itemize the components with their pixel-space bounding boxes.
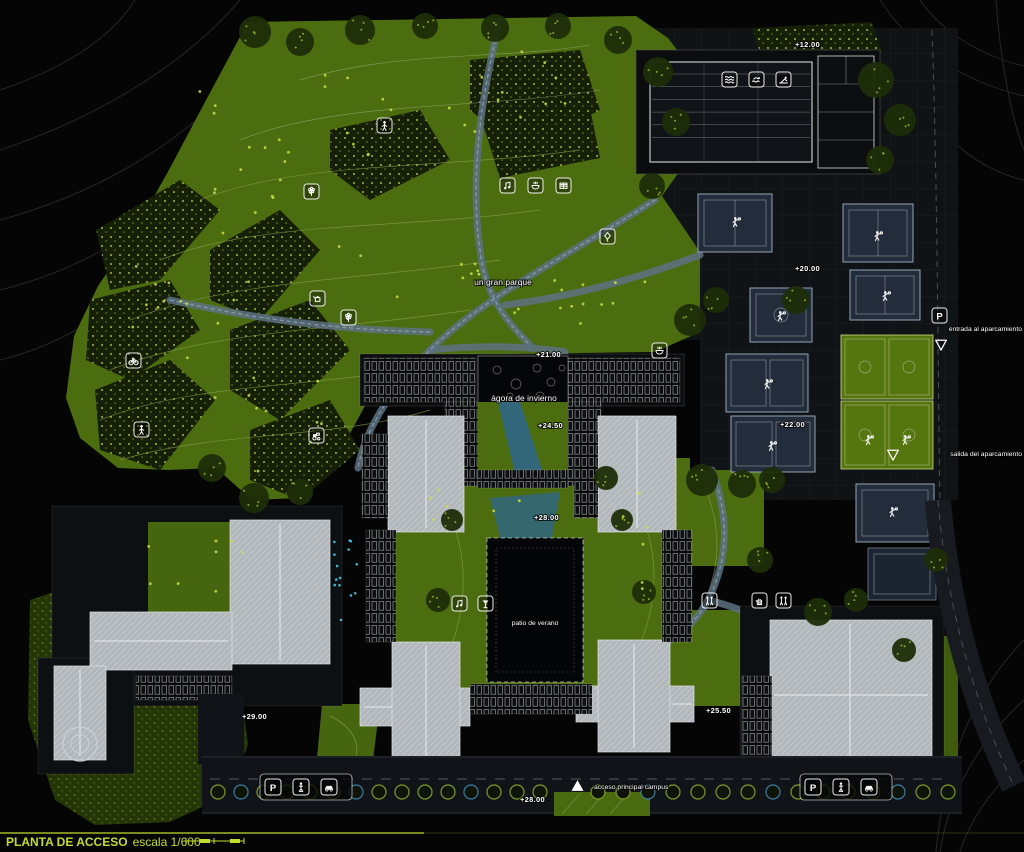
park-label: un gran parque <box>474 277 532 287</box>
elevation-mark: +28.00 <box>534 513 559 522</box>
motorbike-icon <box>833 779 849 795</box>
southeast-building <box>740 606 944 780</box>
plan-title: PLANTA DE ACCESOescala 1/600 <box>6 835 201 849</box>
south-gallery <box>470 684 592 714</box>
elevation-mark: +25.50 <box>706 706 731 715</box>
walker-icon <box>134 422 149 437</box>
east-gallery <box>662 530 692 642</box>
book-icon <box>556 178 571 193</box>
hand-icon <box>752 593 767 608</box>
elevation-mark: +29.00 <box>242 712 267 721</box>
parking-icon: P <box>265 779 281 795</box>
plant-icon <box>341 310 356 325</box>
swimmer-icon <box>749 72 764 87</box>
svg-text:P: P <box>270 783 277 794</box>
parking-exit-label: salida del aparcamiento <box>950 451 1022 458</box>
parking-icon: P <box>805 779 821 795</box>
hiker-icon <box>377 118 392 133</box>
elevation-mark: +22.00 <box>780 420 805 429</box>
motorbike-icon <box>293 779 309 795</box>
svg-text:P: P <box>936 312 943 323</box>
svg-text:P: P <box>810 783 817 794</box>
music-icon <box>452 596 467 611</box>
bicycle-icon <box>126 353 141 368</box>
elevation-mark: +21.00 <box>536 350 561 359</box>
north-east-wing <box>568 358 680 402</box>
elevation-mark: +24.50 <box>538 421 563 430</box>
people-icon <box>776 593 791 608</box>
people-icon <box>702 593 717 608</box>
site-plan: P P P un gran parque ágora de invierno p… <box>0 0 1024 852</box>
winter-agora-label: ágora de invierno <box>491 393 557 403</box>
car-icon <box>861 779 877 795</box>
watering-can-icon <box>310 291 325 306</box>
picnic-bowl-icon <box>528 178 543 193</box>
court <box>856 484 934 542</box>
summer-patio-label: patio de verano <box>512 620 559 627</box>
music-icon <box>500 178 515 193</box>
parking-entry-label: entrada al aparcamiento <box>949 326 1023 333</box>
site-plan-canvas: P P P un gran parque ágora de invierno p… <box>0 0 1024 852</box>
elevation-mark: +28.00 <box>520 795 545 804</box>
car-icon <box>321 779 337 795</box>
winter-agora <box>478 402 568 488</box>
parking-icon: P <box>932 308 947 323</box>
elevation-mark: +12.00 <box>795 40 820 49</box>
elevation-mark: +20.00 <box>795 264 820 273</box>
tractor-icon <box>309 428 324 443</box>
west-gallery <box>366 530 396 642</box>
main-access-label: acceso principal campus <box>594 784 669 791</box>
sunbather-icon <box>776 72 791 87</box>
flower-icon <box>304 184 319 199</box>
cocktail-icon <box>478 596 493 611</box>
football-field <box>841 401 933 469</box>
food-bowl-icon <box>652 343 667 358</box>
waves-icon <box>722 72 737 87</box>
north-west-wing <box>364 358 476 402</box>
football-field <box>841 335 933 399</box>
kite-icon <box>600 229 615 244</box>
